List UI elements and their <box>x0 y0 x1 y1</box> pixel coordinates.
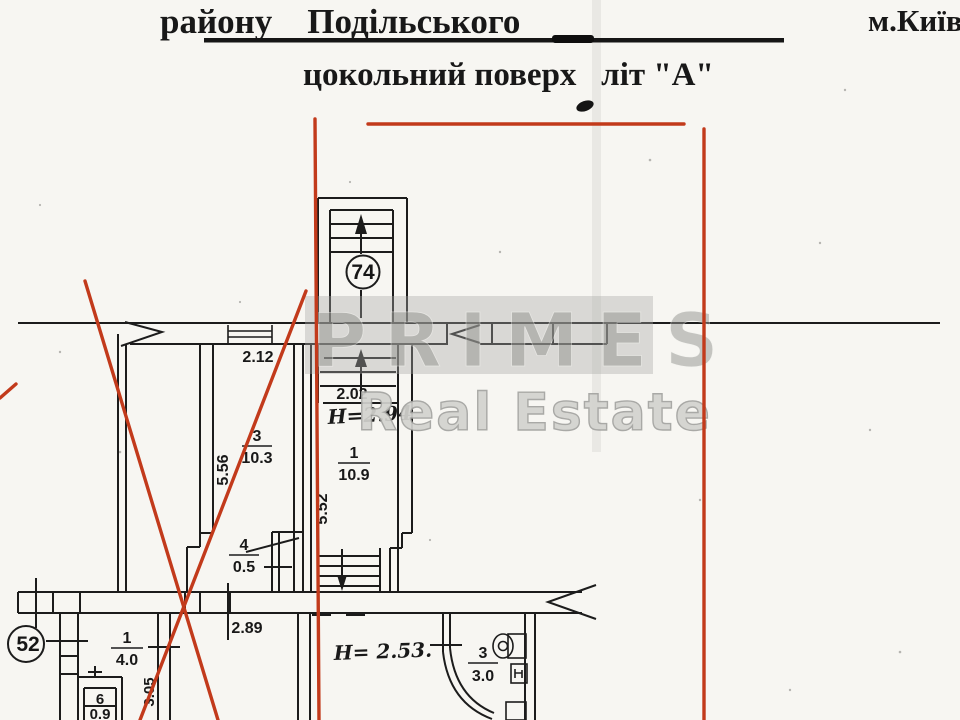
title-underline <box>204 38 784 43</box>
floorplan-canvas: району Подільського м.Київ цокольний пов… <box>0 0 960 720</box>
city-title: м.Київ <box>868 3 960 38</box>
watermark-brand: PRIMES <box>312 298 736 384</box>
svg-text:1: 1 <box>350 445 359 462</box>
svg-text:4: 4 <box>240 537 249 554</box>
svg-text:10.3: 10.3 <box>241 450 272 467</box>
svg-text:74: 74 <box>351 261 375 284</box>
svg-text:0.5: 0.5 <box>233 559 255 576</box>
svg-text:3: 3 <box>479 645 488 662</box>
stairwell-number-badge: 74 <box>347 256 380 289</box>
svg-text:3: 3 <box>253 428 262 445</box>
watermark-suffix: Real Estate <box>357 383 712 443</box>
scanned-floorplan-page: району Подільського м.Київ цокольний пов… <box>0 0 960 720</box>
floor-title: цокольний поверх літ "А" <box>303 57 714 93</box>
svg-text:4.0: 4.0 <box>116 652 138 669</box>
dim-room3-width: 2.12 <box>242 349 273 366</box>
svg-text:52: 52 <box>16 633 39 656</box>
svg-text:10.9: 10.9 <box>338 467 369 484</box>
svg-text:1: 1 <box>123 630 132 647</box>
ink-blot-underline <box>552 35 594 43</box>
dim-room3-depth: 5.56 <box>215 454 232 485</box>
agency-watermark: PRIMES Real Estate <box>305 296 736 443</box>
dim-hall-width: 2.89 <box>231 620 262 637</box>
height-note-lower: H= 2.53. <box>332 638 432 665</box>
svg-text:3.0: 3.0 <box>472 668 494 685</box>
district-title: району Подільського <box>160 2 520 41</box>
svg-text:0.9: 0.9 <box>90 706 111 720</box>
